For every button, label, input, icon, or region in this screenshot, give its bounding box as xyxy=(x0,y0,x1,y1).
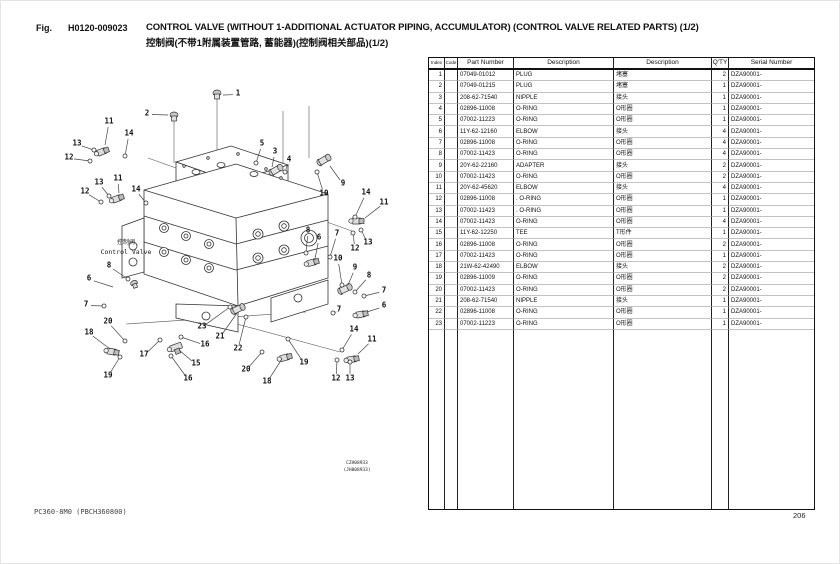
cell-serial: DZA90001- xyxy=(729,138,814,149)
cell-description-en: . O-RING xyxy=(514,194,614,205)
leader-line xyxy=(148,340,160,352)
leader-line xyxy=(330,166,340,180)
cell-part-number: 02896-11008 xyxy=(458,194,514,205)
callout-number: 12 xyxy=(350,244,359,253)
oring-marker xyxy=(123,154,127,158)
cell-code xyxy=(445,149,458,160)
cell-index: 17 xyxy=(429,251,445,262)
fig-label: Fig. xyxy=(36,23,52,33)
callout-number: 7 xyxy=(335,229,340,238)
cell-description-cn: O形圈 xyxy=(614,172,712,183)
oring-marker xyxy=(244,315,248,319)
cell-description-cn: O形圈 xyxy=(614,115,712,126)
cell-qty: 1 xyxy=(712,194,729,205)
cell-part-number: 21W-62-42490 xyxy=(458,262,514,273)
cell-description-cn: O形圈 xyxy=(614,251,712,262)
callout-number: 17 xyxy=(139,350,148,359)
adapter-fitting xyxy=(316,153,332,167)
oring-marker xyxy=(144,201,148,205)
cell-qty: 1 xyxy=(712,93,729,104)
callout-number: 15 xyxy=(191,359,200,368)
cell-description-en: . O-RING xyxy=(514,206,614,217)
cell-part-number: 07002-11423 xyxy=(458,149,514,160)
callout-number: 12 xyxy=(331,374,340,383)
filler-cell xyxy=(458,330,514,509)
callout-number: 9 xyxy=(341,179,346,188)
cell-description-cn: O形圈 xyxy=(614,307,712,318)
cell-part-number: 02896-11008 xyxy=(458,104,514,115)
cell-index: 3 xyxy=(429,93,445,104)
callout-number: 23 xyxy=(197,322,207,331)
cell-description-cn: O形圈 xyxy=(614,217,712,228)
cell-serial: DZA90001- xyxy=(729,273,814,284)
cell-code xyxy=(445,206,458,217)
cell-qty: 1 xyxy=(712,319,729,330)
cell-code xyxy=(445,296,458,307)
leader-line xyxy=(179,350,192,361)
cell-description-en: O-RING xyxy=(514,319,614,330)
cell-description-en: O-RING xyxy=(514,285,614,296)
filler-cell xyxy=(712,330,729,509)
cell-code xyxy=(445,194,458,205)
cell-part-number: 07002-11223 xyxy=(458,319,514,330)
cell-part-number: 02896-11009 xyxy=(458,273,514,284)
cell-serial: DZA90001- xyxy=(729,194,814,205)
cell-code xyxy=(445,104,458,115)
parts-table: IndexCodePart NumberDescriptionDescripti… xyxy=(428,57,815,510)
cell-qty: 1 xyxy=(712,307,729,318)
oring-marker xyxy=(260,350,264,354)
leader-line xyxy=(342,334,352,350)
cell-serial: DZA90001- xyxy=(729,319,814,330)
callout-number: 12 xyxy=(80,187,89,196)
cell-description-en: O-RING xyxy=(514,307,614,318)
cell-part-number: 02896-11008 xyxy=(458,307,514,318)
tee-fitting xyxy=(166,342,184,357)
cell-part-number: 07002-11423 xyxy=(458,172,514,183)
cell-qty: 4 xyxy=(712,126,729,137)
callout-number: 14 xyxy=(124,129,134,138)
cell-description-cn: O形圈 xyxy=(614,194,712,205)
callout-number: 18 xyxy=(84,328,94,337)
cell-index: 23 xyxy=(429,319,445,330)
cell-description-en: O-RING xyxy=(514,172,614,183)
cell-description-cn: 堵塞 xyxy=(614,70,712,81)
page-number: 206 xyxy=(793,511,806,520)
cell-description-en: O-RING xyxy=(514,273,614,284)
callout-number: 6 xyxy=(87,274,92,283)
cell-qty: 2 xyxy=(712,239,729,250)
col-header-part-number: Part Number xyxy=(458,58,514,70)
cell-description-en: PLUG xyxy=(514,70,614,81)
cell-serial: DZA90001- xyxy=(729,115,814,126)
cell-index: 12 xyxy=(429,194,445,205)
leader-line xyxy=(317,172,322,189)
cell-code xyxy=(445,115,458,126)
cell-index: 4 xyxy=(429,104,445,115)
cell-part-number: 07002-11423 xyxy=(458,217,514,228)
cell-qty: 2 xyxy=(712,70,729,81)
cell-description-en: ADAPTER xyxy=(514,160,614,171)
cell-code xyxy=(445,172,458,183)
page-title-en: CONTROL VALVE (WITHOUT 1-ADDITIONAL ACTU… xyxy=(146,22,699,33)
oring-marker xyxy=(92,148,96,152)
page-title-cn: 控制阀(不带1附属装置管路, 蓄能器)(控制阀相关部品)(1/2) xyxy=(146,35,388,49)
leader-line xyxy=(105,127,108,145)
cell-qty: 1 xyxy=(712,115,729,126)
cell-qty: 4 xyxy=(712,217,729,228)
callout-number: 7 xyxy=(337,305,342,314)
cell-index: 19 xyxy=(429,273,445,284)
oring-marker xyxy=(315,170,319,174)
cell-description-cn: 接头 xyxy=(614,160,712,171)
col-header-code: Code xyxy=(445,58,458,70)
callout-number: 19 xyxy=(299,358,309,367)
callout-number: 9 xyxy=(353,263,358,272)
cell-index: 11 xyxy=(429,183,445,194)
callout-number: 16 xyxy=(183,374,193,383)
cell-index: 5 xyxy=(429,115,445,126)
leader-line xyxy=(239,317,246,344)
cell-serial: DZA90001- xyxy=(729,217,814,228)
cell-serial: DZA90001- xyxy=(729,183,814,194)
cell-code xyxy=(445,160,458,171)
cell-index: 20 xyxy=(429,285,445,296)
cell-part-number: 20Y-62-22160 xyxy=(458,160,514,171)
leader-line xyxy=(152,115,168,116)
cell-description-en: O-RING xyxy=(514,217,614,228)
cell-index: 22 xyxy=(429,307,445,318)
filler-cell xyxy=(614,330,712,509)
col-header-serial-number: Serial Number xyxy=(729,58,814,70)
callout-number: 18 xyxy=(262,377,272,386)
cell-code xyxy=(445,319,458,330)
oring-marker xyxy=(179,335,183,339)
cell-description-en: O-RING xyxy=(514,104,614,115)
cell-description-cn: O形圈 xyxy=(614,285,712,296)
oring-marker xyxy=(353,290,357,294)
cell-qty: 4 xyxy=(712,138,729,149)
callout-number: 10 xyxy=(319,189,329,198)
leader-line xyxy=(171,356,185,375)
callout-number: 2 xyxy=(145,109,150,118)
callout-number: 16 xyxy=(200,340,210,349)
cell-description-cn: O形圈 xyxy=(614,149,712,160)
cell-code xyxy=(445,273,458,284)
callout-number: 11 xyxy=(104,117,114,126)
cell-serial: DZA90001- xyxy=(729,126,814,137)
cell-description-en: PLUG xyxy=(514,81,614,92)
leader-line xyxy=(125,139,128,156)
cell-serial: DZA90001- xyxy=(729,93,814,104)
cell-index: 9 xyxy=(429,160,445,171)
cell-description-cn: T形件 xyxy=(614,228,712,239)
col-header-description: Description xyxy=(514,58,614,70)
cell-qty: 2 xyxy=(712,160,729,171)
leader-line xyxy=(181,337,200,344)
leader-line xyxy=(348,273,353,285)
cell-code xyxy=(445,251,458,262)
cell-serial: DZA90001- xyxy=(729,172,814,183)
callout-number: 13 xyxy=(363,238,373,247)
callout-number: 11 xyxy=(367,335,377,344)
oring-marker xyxy=(351,231,355,235)
leader-line xyxy=(367,308,379,312)
oring-marker xyxy=(359,228,363,232)
cell-description-cn: 接头 xyxy=(614,126,712,137)
callout-number: 6 xyxy=(382,301,387,310)
oring-marker xyxy=(304,251,308,255)
cell-index: 13 xyxy=(429,206,445,217)
leader-line xyxy=(358,344,369,354)
cell-description-cn: 堵塞 xyxy=(614,81,712,92)
cell-part-number: 11Y-62-12160 xyxy=(458,126,514,137)
cell-code xyxy=(445,93,458,104)
cell-index: 18 xyxy=(429,262,445,273)
cell-qty: 1 xyxy=(712,206,729,217)
cell-serial: DZA90001- xyxy=(729,285,814,296)
cell-part-number: 02896-11008 xyxy=(458,138,514,149)
cell-description-en: ELBOW xyxy=(514,262,614,273)
cell-part-number: 208-62-71540 xyxy=(458,296,514,307)
leader-line xyxy=(74,159,90,161)
callout-number: 12 xyxy=(64,153,73,162)
callout-number: 20 xyxy=(241,365,251,374)
col-header-q-ty: Q'TY xyxy=(712,58,729,70)
cell-code xyxy=(445,126,458,137)
cell-qty: 2 xyxy=(712,172,729,183)
cell-part-number: 07049-01012 xyxy=(458,70,514,81)
cell-part-number: 07049-01215 xyxy=(458,81,514,92)
callout-number: 14 xyxy=(349,325,359,334)
cell-serial: DZA90001- xyxy=(729,81,814,92)
oring-marker xyxy=(328,255,332,259)
cell-serial: DZA90001- xyxy=(729,228,814,239)
cell-description-en: ELBOW xyxy=(514,183,614,194)
catalog-page: Fig. H0120-009023 CONTROL VALVE (WITHOUT… xyxy=(0,0,840,564)
callout-number: 19 xyxy=(103,371,113,380)
oring-marker xyxy=(331,311,335,315)
leader-line xyxy=(111,326,125,341)
callout-number: 22 xyxy=(233,344,242,353)
footer-model-code: PC360-8M0 (PBCH360800) xyxy=(34,508,127,516)
cell-index: 10 xyxy=(429,172,445,183)
filler-cell xyxy=(729,330,814,509)
control-valve-label-cn: 控制阀 xyxy=(117,238,135,246)
callout-number: 6 xyxy=(317,233,322,242)
cell-description-cn: O形圈 xyxy=(614,206,712,217)
cell-qty: 1 xyxy=(712,104,729,115)
cell-qty: 4 xyxy=(712,149,729,160)
fig-number: H0120-009023 xyxy=(68,23,128,33)
callout-number: 11 xyxy=(379,198,389,207)
cell-description-cn: O形圈 xyxy=(614,104,712,115)
leader-line xyxy=(365,206,380,218)
oring-marker xyxy=(362,294,366,298)
cell-code xyxy=(445,138,458,149)
cell-qty: 2 xyxy=(712,262,729,273)
cell-code xyxy=(445,217,458,228)
callout-number: 4 xyxy=(287,155,292,164)
oring-marker xyxy=(102,304,106,308)
cell-qty: 2 xyxy=(712,285,729,296)
cell-code xyxy=(445,70,458,81)
callout-number: 20 xyxy=(103,317,113,326)
cell-qty: 1 xyxy=(712,228,729,239)
cell-description-cn: O形圈 xyxy=(614,273,712,284)
cell-description-cn: 接头 xyxy=(614,183,712,194)
filler-cell xyxy=(445,330,458,509)
cell-part-number: 07002-11423 xyxy=(458,206,514,217)
cell-description-cn: O形圈 xyxy=(614,319,712,330)
valve-body xyxy=(122,146,328,332)
leader-line xyxy=(118,184,119,193)
cell-code xyxy=(445,239,458,250)
cell-part-number: 208-62-71540 xyxy=(458,93,514,104)
cell-part-number: 20Y-62-45620 xyxy=(458,183,514,194)
cell-code xyxy=(445,262,458,273)
cell-description-en: O-RING xyxy=(514,239,614,250)
callout-number: 13 xyxy=(72,139,82,148)
callout-number: 1 xyxy=(236,89,241,98)
oring-marker xyxy=(340,283,344,287)
callout-number: 13 xyxy=(345,374,355,383)
leader-line xyxy=(270,359,282,378)
oring-marker xyxy=(169,354,173,358)
oring-marker xyxy=(88,159,92,163)
elbow-fitting xyxy=(352,310,368,319)
callout-number: 8 xyxy=(306,226,311,235)
cell-description-en: NIPPLE xyxy=(514,296,614,307)
plug-fitting xyxy=(130,279,139,288)
nipple-fitting xyxy=(337,283,354,296)
cell-description-cn: O形圈 xyxy=(614,239,712,250)
callout-number: 7 xyxy=(84,300,89,309)
cell-index: 14 xyxy=(429,217,445,228)
cell-description-cn: O形圈 xyxy=(614,138,712,149)
drawing-code: CZH08933 xyxy=(346,460,368,466)
cell-index: 2 xyxy=(429,81,445,92)
cell-description-en: ELBOW xyxy=(514,126,614,137)
leader-line xyxy=(249,352,262,366)
oring-marker xyxy=(107,194,111,198)
cell-serial: DZA90001- xyxy=(729,251,814,262)
cell-index: 15 xyxy=(429,228,445,239)
callout-number: 10 xyxy=(333,254,343,263)
oring-marker xyxy=(283,170,287,174)
callout-number: 11 xyxy=(113,174,123,183)
cell-index: 6 xyxy=(429,126,445,137)
cell-index: 21 xyxy=(429,296,445,307)
filler-cell xyxy=(429,330,445,509)
cell-description-cn: 接头 xyxy=(614,296,712,307)
callout-number: 7 xyxy=(382,286,387,295)
oring-marker xyxy=(353,215,357,219)
cell-serial: DZA90001- xyxy=(729,239,814,250)
callout-number: 14 xyxy=(361,188,371,197)
leader-line xyxy=(94,281,113,287)
cell-description-en: NIPPLE xyxy=(514,93,614,104)
elbow-fitting xyxy=(93,146,109,157)
cell-serial: DZA90001- xyxy=(729,149,814,160)
cell-index: 8 xyxy=(429,149,445,160)
cell-description-en: O-RING xyxy=(514,138,614,149)
leader-line xyxy=(93,336,110,349)
drawing-code-alt: (JH008933) xyxy=(343,467,370,473)
callout-number: 8 xyxy=(367,271,372,280)
plug-fitting xyxy=(170,112,178,121)
cell-serial: DZA90001- xyxy=(729,160,814,171)
elbow-fitting xyxy=(103,347,119,356)
cell-part-number: 07002-11223 xyxy=(458,115,514,126)
cell-description-en: O-RING xyxy=(514,149,614,160)
cell-serial: DZA90001- xyxy=(729,262,814,273)
filler-cell xyxy=(514,330,614,509)
oring-marker xyxy=(286,337,290,341)
cell-serial: DZA90001- xyxy=(729,70,814,81)
oring-marker xyxy=(254,161,258,165)
exploded-view-diagram: 控制阀 Control Valve CZH08933 (JH008933) 12… xyxy=(26,66,426,506)
cell-serial: DZA90001- xyxy=(729,104,814,115)
cell-description-cn: 接头 xyxy=(614,93,712,104)
cell-code xyxy=(445,307,458,318)
cell-part-number: 07002-11423 xyxy=(458,285,514,296)
oring-marker xyxy=(123,339,127,343)
cell-qty: 1 xyxy=(712,251,729,262)
elbow-fitting xyxy=(276,353,292,363)
plug-fitting xyxy=(213,90,221,99)
oring-marker xyxy=(335,358,339,362)
callout-number: 21 xyxy=(215,332,225,341)
cell-serial: DZA90001- xyxy=(729,206,814,217)
oring-marker xyxy=(348,360,352,364)
cell-description-cn: 接头 xyxy=(614,262,712,273)
oring-marker xyxy=(340,348,344,352)
cell-qty: 2 xyxy=(712,273,729,284)
cell-serial: DZA90001- xyxy=(729,296,814,307)
cell-qty: 4 xyxy=(712,183,729,194)
leader-line xyxy=(355,198,364,217)
cell-description-en: O-RING xyxy=(514,115,614,126)
cell-code xyxy=(445,81,458,92)
callout-number: 8 xyxy=(107,261,112,270)
col-header-description: Description xyxy=(614,58,712,70)
control-valve-label-en: Control Valve xyxy=(101,248,152,256)
callout-number: 5 xyxy=(260,139,265,148)
leader-line xyxy=(339,264,342,285)
cell-part-number: 11Y-62-12250 xyxy=(458,228,514,239)
cell-code xyxy=(445,183,458,194)
cell-serial: DZA90001- xyxy=(729,307,814,318)
col-header-index: Index xyxy=(429,58,445,70)
oring-marker xyxy=(228,305,232,309)
cell-index: 1 xyxy=(429,70,445,81)
cell-description-en: TEE xyxy=(514,228,614,239)
cell-qty: 1 xyxy=(712,296,729,307)
leader-line xyxy=(355,280,366,292)
oring-marker xyxy=(118,355,122,359)
cell-description-en: O-RING xyxy=(514,251,614,262)
cell-part-number: 07002-11423 xyxy=(458,251,514,262)
cell-code xyxy=(445,285,458,296)
oring-marker xyxy=(158,338,162,342)
cell-qty: 1 xyxy=(712,81,729,92)
oring-marker xyxy=(126,277,130,281)
cell-index: 16 xyxy=(429,239,445,250)
callout-number: 13 xyxy=(94,178,104,187)
callout-number: 3 xyxy=(273,147,278,156)
cell-part-number: 02896-11008 xyxy=(458,239,514,250)
